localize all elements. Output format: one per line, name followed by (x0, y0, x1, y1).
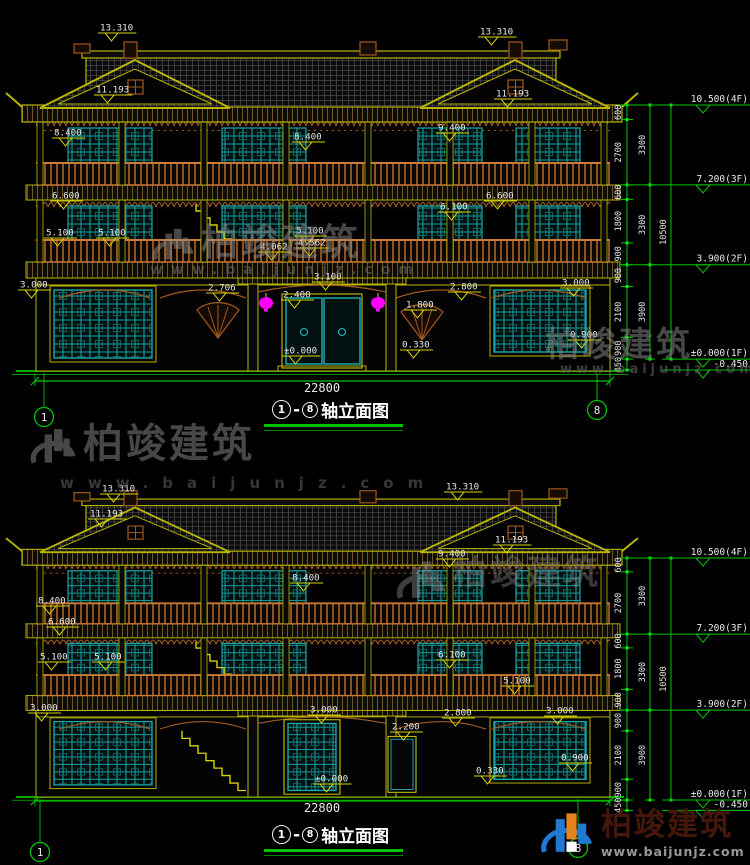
axis-bubble-label: 8 (594, 404, 601, 417)
elevation-label: 0.330 (476, 766, 504, 777)
elevation-label: 2.400 (283, 290, 311, 301)
dim-text: 3900 (638, 302, 648, 322)
level-triangle-icon (696, 265, 710, 273)
elevation-label: 2.200 (392, 722, 420, 733)
elevation-label: 5.100 (98, 228, 126, 239)
dim-text: 1800 (614, 658, 624, 678)
elevation-label: ±0.000 (284, 346, 317, 357)
level-triangle-icon (696, 105, 710, 113)
overall-dimension: 22800 (31, 373, 614, 395)
elevation-label: 2.706 (208, 283, 236, 294)
dimension-chain: 6002700600180090090021009003300330039001… (614, 547, 750, 818)
elevation-label: 13.310 (480, 27, 513, 38)
elevation-label: 2.800 (444, 708, 472, 719)
elevation-label: 11.193 (96, 85, 129, 96)
level-label: 10.500(4F) (691, 94, 748, 105)
elevation-label: 9.400 (438, 549, 466, 560)
dim-text: 1800 (614, 211, 624, 231)
elevation-label: 3.000 (562, 278, 590, 289)
elevation-triangle-icon (105, 33, 118, 41)
caption-axis-end-bubble: 8 (302, 402, 318, 418)
level-label: ±0.000(1F) (691, 348, 748, 359)
elevation-label: 13.310 (102, 484, 135, 495)
cad-canvas: 13.31013.31011.19311.1939.4008.4008.4006… (0, 0, 750, 865)
level-label: 10.500(4F) (691, 547, 748, 558)
top-view-caption: 1 - 8 轴立面图 (268, 397, 393, 426)
level-triangle-icon (696, 185, 710, 193)
elevation-label: 4.062 (260, 242, 288, 253)
elevation-label: 13.310 (100, 23, 133, 34)
dim-text: 900 (614, 246, 624, 261)
elevation-triangle-icon (485, 37, 498, 45)
elevation-label: 3.100 (314, 272, 342, 283)
elevation-label: 3.000 (310, 705, 338, 716)
level-triangle-icon (696, 800, 710, 808)
dim-text: 2100 (614, 745, 624, 765)
dim-text: 3300 (638, 586, 648, 606)
elevation-drawing: 13.31013.31011.19311.1939.4008.4008.4006… (0, 0, 750, 865)
elevation-label: 6.600 (48, 617, 76, 628)
level-label: 7.200(3F) (697, 174, 748, 185)
level-label: -0.450 (714, 359, 749, 370)
elevation-label: 0.900 (561, 753, 589, 764)
caption-axis-start-bubble: 1 (272, 400, 291, 419)
level-label: 3.900(2F) (697, 254, 748, 265)
caption-axis-end-bubble: 8 (302, 827, 318, 843)
axis-bubble: 1 (31, 799, 50, 862)
dim-text: 10500 (659, 219, 669, 245)
level-label: 3.900(2F) (697, 699, 748, 710)
level-triangle-icon (696, 359, 710, 367)
dim-text: 2700 (614, 593, 624, 613)
level-triangle-icon (696, 810, 710, 818)
elevation-label: 3.000 (20, 280, 48, 291)
elevation-label: 1.800 (406, 300, 434, 311)
level-label: 7.200(3F) (697, 623, 748, 634)
bottom-view-caption: 1 - 8 轴立面图 (268, 822, 393, 851)
elevation-label: 11.193 (496, 89, 529, 100)
elevation-label: 5.100 (46, 228, 74, 239)
elevation-label: 5.100 (40, 652, 68, 663)
dim-text: 2100 (614, 302, 624, 322)
elevation-label: 13.310 (446, 482, 479, 493)
dim-text: 3300 (638, 215, 648, 235)
dim-text: 3300 (638, 662, 648, 682)
building-facade-bottom (6, 489, 638, 800)
dim-text: 600 (614, 105, 624, 120)
overall-dim-label: 22800 (304, 801, 340, 815)
elevation-label: 5.100 (296, 226, 324, 237)
caption-separator: - (293, 400, 300, 420)
elevation-label: 11.193 (495, 535, 528, 546)
level-label: ±0.000(1F) (691, 789, 748, 800)
dim-text: 3900 (638, 745, 648, 765)
elevation-label: 11.193 (90, 509, 123, 520)
elevation-label: 8.400 (294, 132, 322, 143)
axis-bubble: 8 (588, 373, 607, 420)
caption-label: 轴立面图 (321, 822, 389, 847)
elevation-label: 3.000 (546, 706, 574, 717)
dimension-chain: 6002700600180090090021009003300330039001… (614, 94, 750, 378)
level-triangle-icon (696, 634, 710, 642)
caption-label: 轴立面图 (321, 397, 389, 422)
level-triangle-icon (696, 558, 710, 566)
elevation-label: 6.600 (486, 191, 514, 202)
caption-separator: - (293, 825, 300, 845)
elevation-label: 8.400 (38, 596, 66, 607)
dim-text: 900 (614, 268, 624, 283)
elevation-label: 9.400 (438, 123, 466, 134)
caption-axis-start-bubble: 1 (272, 825, 291, 844)
dim-text: 900 (614, 713, 624, 728)
level-triangle-icon (696, 710, 710, 718)
elevation-label: 3.000 (30, 703, 58, 714)
elevation-label: 4.562 (298, 238, 326, 249)
elevation-label: 0.330 (402, 340, 430, 351)
dim-text: 900 (614, 782, 624, 797)
dim-text: 900 (614, 341, 624, 356)
elevation-label: 5.100 (503, 676, 531, 687)
elevation-label: 8.400 (54, 128, 82, 139)
level-triangle-icon (696, 370, 710, 378)
elevation-label: 8.400 (292, 573, 320, 584)
elevation-label: 6.100 (438, 650, 466, 661)
dim-text: 3300 (638, 135, 648, 155)
elevation-label: 2.800 (450, 282, 478, 293)
axis-bubble-label: 1 (41, 411, 48, 424)
dim-text: 900 (614, 692, 624, 707)
elevation-label: 0.900 (570, 330, 598, 341)
dim-text: 600 (614, 184, 624, 199)
axis-bubble-label: 8 (575, 842, 582, 855)
elevation-label: 5.100 (94, 652, 122, 663)
elevation-triangle-icon (45, 662, 58, 670)
elevation-label: 6.100 (440, 202, 468, 213)
elevation-label: 6.600 (52, 191, 80, 202)
dim-text: 600 (614, 557, 624, 572)
dim-text: 600 (614, 633, 624, 648)
level-label: -0.450 (714, 799, 749, 810)
overall-dimension: 22800 (31, 797, 614, 815)
axis-bubble-label: 1 (37, 846, 44, 859)
dim-text: 10500 (659, 666, 669, 692)
overall-dim-label: 22800 (304, 381, 340, 395)
axis-bubble: 8 (569, 799, 588, 858)
elevation-label: ±0.000 (315, 774, 348, 785)
dim-text: 2700 (614, 142, 624, 162)
